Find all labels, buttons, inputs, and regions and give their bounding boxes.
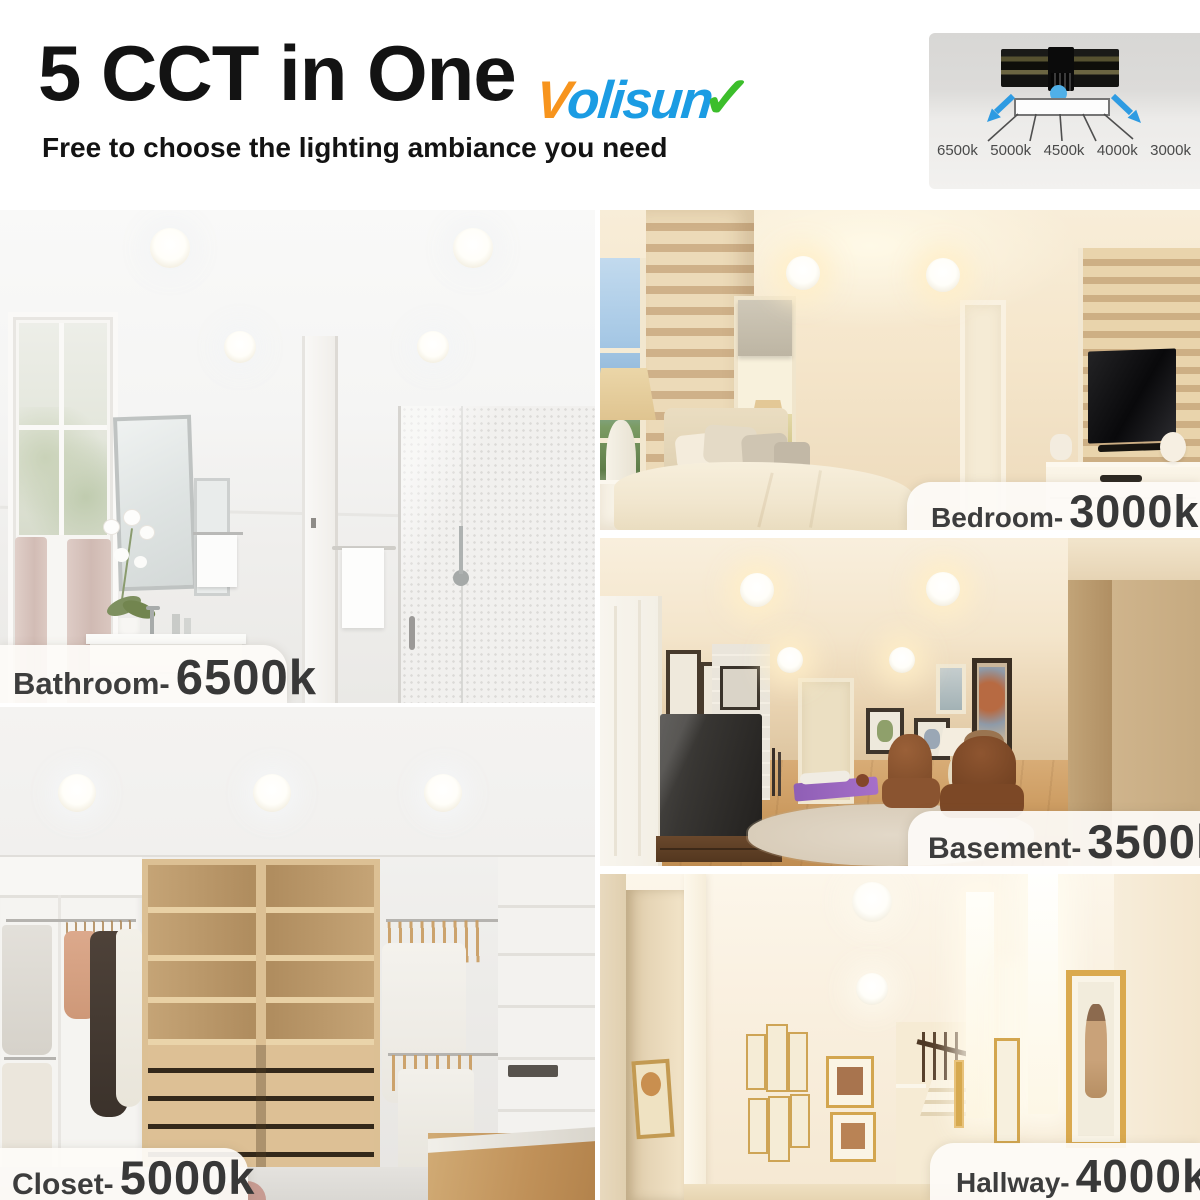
ceiling-soffit	[1068, 538, 1200, 584]
cct-label: 4000k	[1097, 142, 1138, 159]
ceiling-light	[58, 774, 96, 812]
window-mullion	[600, 348, 640, 353]
faucet	[146, 606, 160, 610]
toiletry-bottle	[184, 618, 191, 634]
shelf-line	[498, 1005, 595, 1008]
orchid-flower	[114, 548, 129, 562]
ceiling-light	[740, 573, 774, 607]
left-door-wall	[600, 596, 662, 866]
basement-window	[936, 664, 966, 714]
door-trim	[638, 600, 641, 856]
orchid-flower	[104, 520, 119, 534]
door-handle	[311, 518, 316, 528]
shower-enclosure	[398, 406, 595, 703]
picture-frame	[748, 1098, 768, 1154]
photo-basement: Basement- 3500k	[600, 538, 1200, 866]
room-temp: 5000k	[120, 1154, 256, 1200]
check-icon: ✓	[700, 66, 754, 129]
window-light	[1028, 874, 1058, 1114]
photo-closet: Closet- 5000k	[0, 707, 595, 1200]
door	[302, 336, 338, 703]
photo-hallway: Hallway- 4000k	[600, 874, 1200, 1200]
picture-frame	[1066, 970, 1126, 1148]
ledge	[896, 1084, 926, 1088]
picture-frame	[788, 1032, 808, 1092]
subtitle: Free to choose the lighting ambiance you…	[42, 132, 667, 164]
page-title: 5 CCT in One	[38, 34, 516, 112]
toiletry-bottle	[172, 614, 180, 634]
fan-lines-and-arrows-icon	[929, 33, 1200, 189]
cct-label: 6500k	[937, 142, 978, 159]
ceiling-light	[253, 774, 291, 812]
frame-photo	[837, 1067, 863, 1095]
doorway-opening	[626, 890, 684, 1200]
product-ad-canvas: 5 CCT in One Volisun ✓ Free to choose th…	[0, 0, 1200, 1200]
clothes-rod	[4, 1057, 56, 1060]
photo-bathroom: Bathroom- 6500k	[0, 210, 595, 703]
ceiling-light	[786, 256, 820, 290]
room-temp: 6500k	[176, 654, 317, 703]
glass-reflection	[401, 406, 595, 703]
ceiling-light	[889, 647, 915, 673]
shelf-item	[508, 1065, 558, 1077]
room-name: Bedroom-	[931, 504, 1063, 530]
room-temp: 3500k	[1087, 818, 1200, 865]
door-trim	[684, 874, 706, 1200]
ceiling-light	[852, 882, 892, 922]
faucet	[150, 610, 154, 634]
picture-frame	[790, 1094, 810, 1148]
cct-selector-diagram: 6500k 5000k 4500k 4000k 3000k	[929, 33, 1200, 189]
shelf-line	[498, 1109, 595, 1112]
picture-frame	[954, 1060, 964, 1128]
picture-frame	[826, 1056, 874, 1108]
orchid-flower	[124, 510, 140, 525]
blanket-fold	[809, 470, 822, 528]
hanging-clothes	[2, 925, 52, 1055]
leather-armchair	[934, 736, 1026, 820]
fire-tools	[772, 748, 775, 796]
decor-lamp	[1160, 432, 1186, 462]
frame-art	[640, 1071, 662, 1096]
ceiling-light	[926, 258, 960, 292]
cct-label: 4500k	[1044, 142, 1085, 159]
room-label-bedroom: Bedroom- 3000k	[907, 482, 1200, 530]
window-mullion	[19, 425, 107, 430]
orchid-stem	[121, 528, 133, 600]
left-wall-dark	[600, 874, 626, 1200]
ceiling-light	[224, 331, 256, 363]
brand-logo: Volisun	[534, 74, 714, 127]
towel	[197, 535, 237, 587]
gallery-frames	[746, 1024, 822, 1164]
window-light	[966, 892, 994, 1118]
frame-portrait	[1085, 1004, 1107, 1098]
picture-frame	[746, 1034, 766, 1090]
white-gown	[116, 929, 142, 1107]
shelf-line	[498, 905, 595, 908]
room-temp: 4000k	[1076, 1153, 1200, 1199]
picture-frame	[631, 1059, 674, 1139]
frame-photo	[841, 1123, 865, 1149]
bed-blanket	[614, 462, 914, 530]
ceiling-light	[150, 228, 190, 268]
ceiling-light	[453, 228, 493, 268]
fire-tools	[778, 752, 781, 796]
photo-bedroom: Bedroom- 3000k	[600, 210, 1200, 530]
room-name: Basement-	[928, 834, 1081, 864]
shelf-line	[498, 953, 595, 956]
picture-frame	[830, 1112, 876, 1162]
cct-label-row: 6500k 5000k 4500k 4000k 3000k	[937, 142, 1191, 159]
cct-label: 3000k	[1150, 142, 1191, 159]
picture-frame	[768, 1096, 790, 1162]
ceiling-light	[856, 973, 888, 1005]
tv	[1088, 348, 1176, 443]
picture-frame	[666, 650, 701, 722]
remote-control	[1100, 475, 1142, 482]
lamp-shade	[600, 368, 656, 420]
room-label-closet: Closet- 5000k	[0, 1148, 248, 1200]
orchid-flower	[140, 526, 154, 539]
shelf-line	[498, 1057, 595, 1060]
exercise-ball	[856, 774, 869, 787]
room-name: Hallway-	[956, 1169, 1070, 1197]
tv	[660, 714, 762, 842]
cct-label: 5000k	[990, 142, 1031, 159]
orchid-flower	[134, 556, 147, 568]
door-trim	[614, 606, 617, 856]
room-temp: 3000k	[1069, 489, 1199, 530]
chair-seat	[882, 778, 940, 808]
screen-reflection	[660, 714, 762, 842]
decor-coral	[1050, 434, 1072, 460]
towel	[342, 548, 384, 628]
picture-frame	[766, 1024, 788, 1092]
vanity-counter	[86, 634, 246, 644]
ceiling-light	[926, 572, 960, 606]
island-dresser	[428, 1133, 595, 1200]
room-name: Closet-	[12, 1170, 114, 1200]
blanket-fold	[757, 472, 773, 527]
center-divider	[256, 865, 266, 1045]
room-label-bathroom: Bathroom- 6500k	[0, 645, 287, 703]
room-label-basement: Basement- 3500k	[908, 811, 1200, 866]
room-label-hallway: Hallway- 4000k	[930, 1143, 1200, 1200]
ceiling-light	[424, 774, 462, 812]
roman-shade	[738, 300, 792, 356]
ceiling-light	[417, 331, 449, 363]
brand-wordmark: olisun	[565, 71, 714, 130]
ceiling-light	[777, 647, 803, 673]
room-name: Bathroom-	[13, 668, 170, 699]
picture-frame	[994, 1038, 1020, 1144]
orchid-plant	[100, 510, 164, 644]
top-shelf	[0, 857, 142, 898]
picture-frame	[720, 666, 760, 710]
